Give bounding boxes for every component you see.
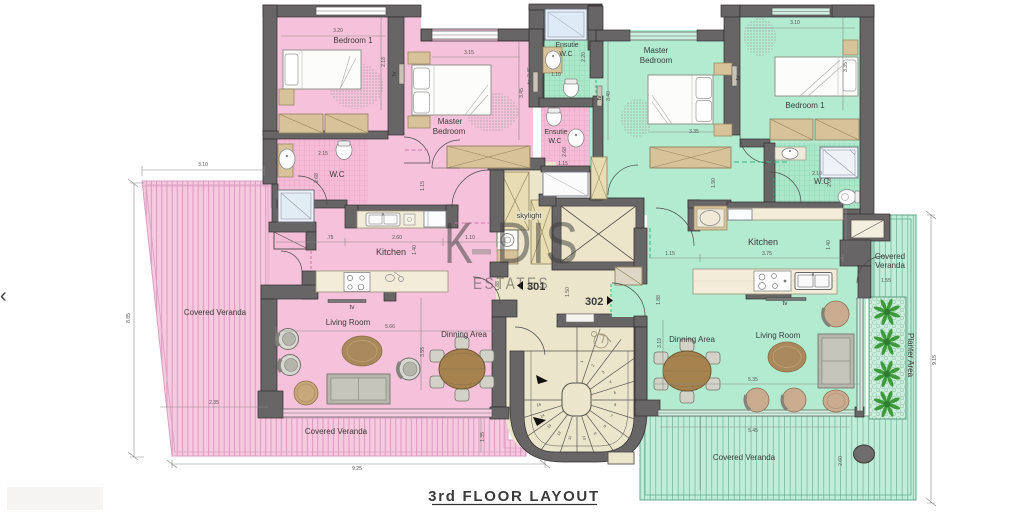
svg-text:1.40: 1.40 xyxy=(412,245,418,255)
svg-text:Bedroom: Bedroom xyxy=(433,127,466,136)
svg-text:1.10: 1.10 xyxy=(551,72,561,78)
svg-text:2.60: 2.60 xyxy=(838,456,844,466)
svg-text:tv: tv xyxy=(596,95,603,101)
svg-text:‹: ‹ xyxy=(0,285,7,307)
svg-text:1.40: 1.40 xyxy=(826,240,832,250)
svg-text:302: 302 xyxy=(585,296,603,308)
svg-text:W.C: W.C xyxy=(329,170,344,179)
svg-text:Covered Veranda: Covered Veranda xyxy=(305,427,368,436)
svg-text:9.25: 9.25 xyxy=(352,466,362,472)
svg-text:1.15: 1.15 xyxy=(420,181,426,191)
svg-text:Veranda: Veranda xyxy=(875,261,905,270)
svg-text:3.19: 3.19 xyxy=(657,338,663,348)
svg-text:Ensutie: Ensutie xyxy=(544,129,567,136)
svg-text:3rd FLOOR LAYOUT: 3rd FLOOR LAYOUT xyxy=(428,488,600,505)
svg-text:tv: tv xyxy=(527,80,533,84)
svg-text:1.90: 1.90 xyxy=(711,178,717,188)
svg-text:1.35: 1.35 xyxy=(480,432,486,442)
svg-text:3.10: 3.10 xyxy=(790,20,800,26)
svg-text:2.20: 2.20 xyxy=(581,52,587,62)
svg-text:W.C: W.C xyxy=(548,138,561,145)
svg-text:3.45: 3.45 xyxy=(527,67,533,77)
svg-text:5.66: 5.66 xyxy=(385,324,395,330)
svg-text:.75: .75 xyxy=(327,235,334,241)
svg-text:tv: tv xyxy=(391,71,398,77)
svg-text:Master: Master xyxy=(438,117,463,126)
svg-text:2.68: 2.68 xyxy=(562,147,568,157)
svg-text:2.35: 2.35 xyxy=(209,400,219,406)
svg-text:3.15: 3.15 xyxy=(464,50,474,56)
svg-text:2.18: 2.18 xyxy=(381,57,387,67)
svg-text:1.88: 1.88 xyxy=(656,295,662,305)
svg-text:Bedroom 1: Bedroom 1 xyxy=(333,36,373,45)
svg-text:3.55: 3.55 xyxy=(420,347,426,357)
svg-text:2.60: 2.60 xyxy=(392,235,402,241)
svg-text:3.20: 3.20 xyxy=(333,28,343,34)
svg-text:3.35: 3.35 xyxy=(843,62,849,72)
svg-text:DIS: DIS xyxy=(496,211,578,276)
svg-text:Covered Veranda: Covered Veranda xyxy=(713,453,776,462)
svg-text:Master: Master xyxy=(644,46,669,55)
svg-text:2.15: 2.15 xyxy=(318,151,328,157)
svg-text:3.45: 3.45 xyxy=(519,88,525,98)
svg-text:3.75: 3.75 xyxy=(762,251,772,257)
svg-text:8.85: 8.85 xyxy=(126,313,132,323)
svg-text:3.40: 3.40 xyxy=(606,91,612,101)
svg-text:15: 15 xyxy=(536,403,541,408)
svg-text:Ensutie: Ensutie xyxy=(555,42,578,49)
svg-text:3.35: 3.35 xyxy=(689,129,699,135)
svg-text:Bedroom: Bedroom xyxy=(640,56,673,65)
svg-text:3.10: 3.10 xyxy=(198,162,208,168)
svg-text:10: 10 xyxy=(582,435,587,440)
svg-text:1.15: 1.15 xyxy=(665,251,675,257)
svg-text:Kitchen: Kitchen xyxy=(376,247,406,257)
svg-text:5.45: 5.45 xyxy=(748,428,758,434)
svg-text:Bedroom 1: Bedroom 1 xyxy=(785,101,825,110)
svg-text:Dinning Area: Dinning Area xyxy=(441,330,487,339)
svg-text:ESTATES: ESTATES xyxy=(473,274,550,293)
svg-text:Planter Area: Planter Area xyxy=(906,333,915,378)
svg-text:11: 11 xyxy=(568,436,573,441)
svg-text:K: K xyxy=(444,211,473,276)
svg-text:Living Room: Living Room xyxy=(326,318,371,327)
svg-text:Kitchen: Kitchen xyxy=(748,237,778,247)
svg-text:W.C: W.C xyxy=(559,51,572,58)
svg-text:tv: tv xyxy=(349,304,355,311)
svg-text:Dinning Area: Dinning Area xyxy=(669,335,715,344)
svg-text:Covered Veranda: Covered Veranda xyxy=(184,308,247,317)
svg-text:5.35: 5.35 xyxy=(748,377,758,383)
svg-text:9.15: 9.15 xyxy=(932,355,938,365)
svg-text:1.50: 1.50 xyxy=(565,287,571,297)
svg-text:Living Room: Living Room xyxy=(756,331,801,340)
svg-text:tv: tv xyxy=(735,75,742,81)
svg-text:tv: tv xyxy=(782,300,788,307)
svg-text:1.55: 1.55 xyxy=(881,278,891,284)
svg-text:2.68: 2.68 xyxy=(314,173,320,183)
svg-text:1.15: 1.15 xyxy=(558,161,568,167)
svg-text:W.C: W.C xyxy=(814,177,829,186)
